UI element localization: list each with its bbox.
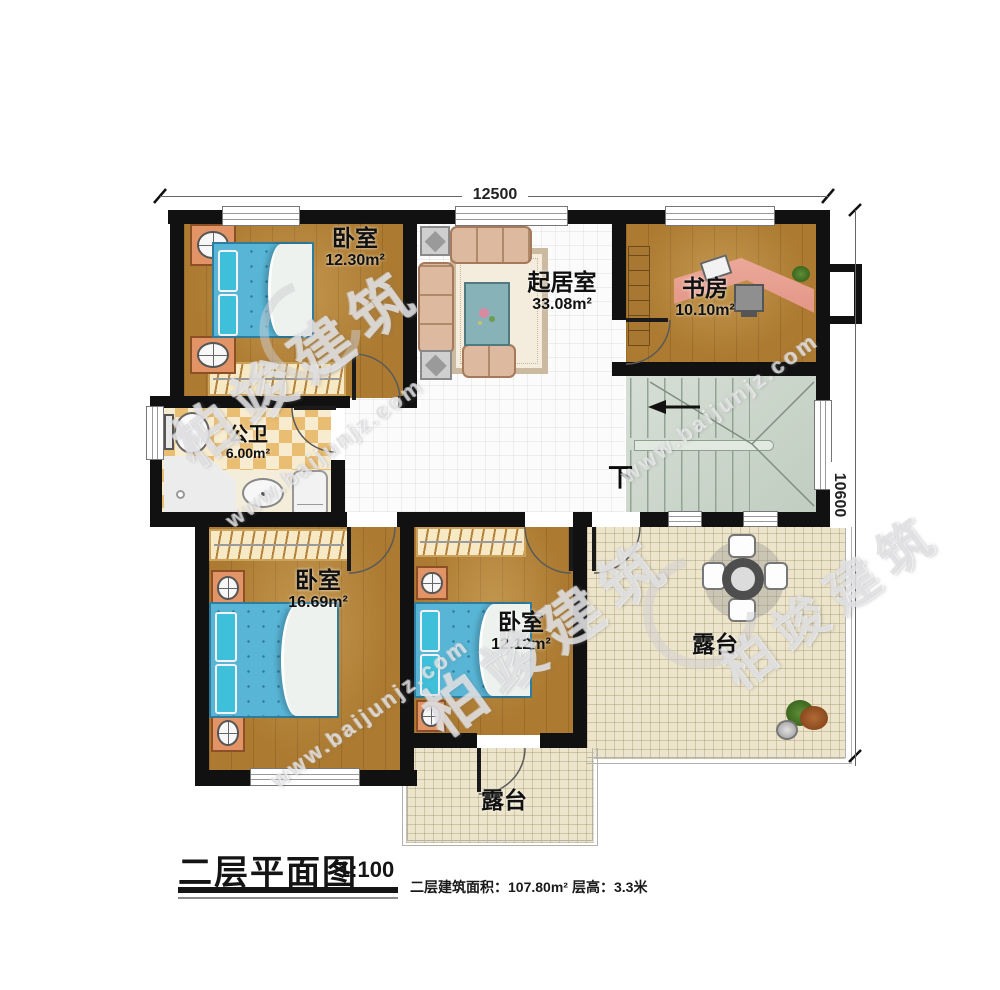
window bbox=[250, 768, 360, 786]
floor-area-info: 二层建筑面积：107.80m² bbox=[410, 877, 568, 897]
wardrobe bbox=[416, 527, 526, 557]
end-table bbox=[420, 350, 452, 380]
wall-segment bbox=[540, 733, 587, 748]
window bbox=[743, 511, 778, 527]
room-label-terrace-east: 露台 bbox=[665, 625, 765, 659]
dimension-top-value: 12500 bbox=[462, 186, 528, 204]
room-area: 6.00m² bbox=[196, 446, 300, 462]
wall-segment bbox=[150, 396, 350, 408]
pillow bbox=[420, 610, 440, 652]
floor-height-label: 层高： bbox=[572, 879, 614, 895]
bed-sheet bbox=[281, 604, 337, 716]
wall-segment bbox=[400, 733, 477, 748]
room-label-living: 起居室 33.08m² bbox=[500, 270, 624, 314]
room-area: 10.10m² bbox=[645, 302, 765, 320]
room-area: 33.08m² bbox=[500, 296, 624, 314]
nightstand bbox=[416, 566, 448, 600]
chair bbox=[728, 534, 756, 558]
room-label-bathroom: 公卫 6.00m² bbox=[196, 424, 300, 462]
stairs-down-label: 下 bbox=[608, 458, 633, 494]
room-name: 卧室 bbox=[295, 226, 415, 252]
title-underline-thin bbox=[178, 897, 398, 899]
wardrobe bbox=[209, 529, 349, 561]
sofa-bottom bbox=[462, 344, 516, 378]
room-label-study: 书房 10.10m² bbox=[645, 276, 765, 320]
toilet-tank bbox=[164, 414, 174, 450]
window bbox=[668, 511, 702, 527]
wall-segment bbox=[150, 512, 347, 527]
nightstand bbox=[211, 714, 245, 752]
window bbox=[222, 206, 300, 226]
sofa-top bbox=[450, 226, 532, 264]
wall-segment bbox=[300, 210, 455, 224]
room-name: 卧室 bbox=[462, 610, 580, 636]
room-label-bedroom-sw: 卧室 16.69m² bbox=[258, 568, 378, 612]
pillow bbox=[218, 294, 238, 336]
wall-segment bbox=[778, 512, 830, 527]
bed bbox=[209, 602, 339, 718]
wall-segment bbox=[331, 460, 345, 514]
wall-segment bbox=[397, 512, 525, 527]
floor-height-value: 3.3米 bbox=[614, 879, 647, 895]
end-table bbox=[420, 226, 450, 256]
room-label-bedroom-s: 卧室 12.12m² bbox=[462, 610, 580, 654]
floor-area-label: 二层建筑面积： bbox=[410, 879, 508, 895]
pillow bbox=[218, 250, 238, 292]
wall-segment bbox=[195, 512, 209, 786]
sink bbox=[242, 478, 284, 508]
sofa-left bbox=[418, 262, 454, 354]
shower-drain-icon bbox=[176, 490, 185, 499]
wall-segment bbox=[612, 362, 830, 376]
nightstand bbox=[416, 700, 446, 732]
wall-segment bbox=[195, 770, 250, 786]
wall-segment bbox=[702, 512, 745, 527]
dimension-line-right bbox=[855, 210, 856, 766]
chair bbox=[764, 562, 788, 590]
dimension-right-value: 10600 bbox=[830, 462, 848, 528]
pillow bbox=[215, 664, 237, 714]
bay-window bbox=[822, 264, 862, 324]
room-name: 起居室 bbox=[500, 270, 624, 296]
room-area: 12.30m² bbox=[295, 252, 415, 270]
plan-scale: 1:100 bbox=[338, 857, 394, 883]
chair bbox=[728, 598, 756, 622]
floor-area-value: 107.80m² bbox=[508, 879, 568, 895]
stairs-handrail bbox=[634, 440, 774, 451]
desk-plant-icon bbox=[792, 266, 810, 282]
room-label-terrace-south: 露台 bbox=[454, 781, 554, 815]
pillow bbox=[420, 654, 440, 696]
washing-machine bbox=[292, 470, 328, 514]
wall-segment bbox=[398, 396, 417, 408]
floor-height-info: 层高：3.3米 bbox=[572, 877, 647, 897]
title-underline-thick bbox=[178, 887, 398, 893]
room-area: 16.69m² bbox=[258, 594, 378, 612]
room-name: 书房 bbox=[645, 276, 765, 302]
stairs-upper-flight bbox=[630, 378, 750, 438]
nightstand bbox=[190, 336, 236, 374]
room-name: 卧室 bbox=[258, 568, 378, 594]
room-label-bedroom-nw: 卧室 12.30m² bbox=[295, 226, 415, 270]
room-area: 12.12m² bbox=[462, 636, 580, 654]
floorplan-canvas: 卧室 12.30m² 起居室 33.08m² 书房 10.10m² 公卫 6.0… bbox=[0, 0, 1000, 990]
wall-segment bbox=[331, 396, 345, 408]
window bbox=[455, 206, 568, 226]
pillow bbox=[215, 612, 237, 662]
window bbox=[665, 206, 775, 226]
wall-segment bbox=[170, 210, 184, 402]
wall-segment bbox=[640, 512, 670, 527]
stairs-lower-flight bbox=[630, 450, 750, 512]
wall-segment bbox=[360, 770, 417, 786]
round-table bbox=[722, 558, 764, 600]
window bbox=[146, 406, 164, 460]
plant-pot-icon bbox=[776, 720, 798, 740]
potted-plant-icon bbox=[800, 706, 828, 730]
room-name: 公卫 bbox=[196, 424, 300, 446]
nightstand bbox=[211, 570, 245, 606]
